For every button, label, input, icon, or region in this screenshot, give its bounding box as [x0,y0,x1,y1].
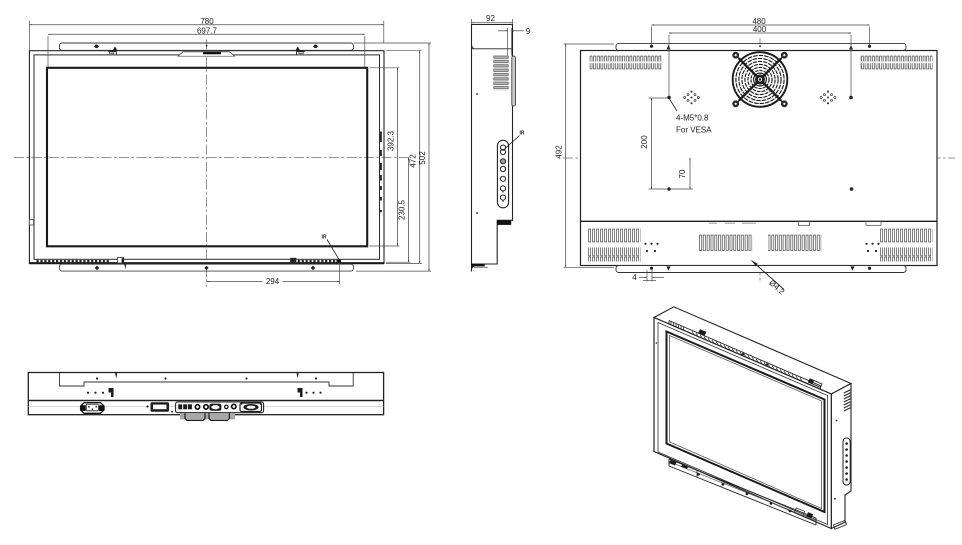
svg-text:4-M5*0.8: 4-M5*0.8 [676,114,709,123]
svg-text:For VESA: For VESA [676,126,712,135]
svg-text:9: 9 [526,27,531,36]
svg-text:697.7: 697.7 [197,27,218,36]
svg-text:IR: IR [322,235,327,241]
svg-text:780: 780 [200,17,214,26]
svg-text:294: 294 [266,277,280,286]
svg-text:392.3: 392.3 [387,130,396,151]
svg-text:502: 502 [418,151,427,165]
svg-text:400: 400 [753,25,767,34]
svg-text:230.5: 230.5 [398,199,407,220]
svg-text:200: 200 [640,135,649,149]
svg-text:92: 92 [486,14,495,23]
svg-text:4: 4 [632,273,637,282]
svg-text:70: 70 [678,169,687,178]
svg-text:472: 472 [409,154,418,168]
svg-text:IR: IR [520,131,525,137]
svg-text:492: 492 [555,145,564,159]
